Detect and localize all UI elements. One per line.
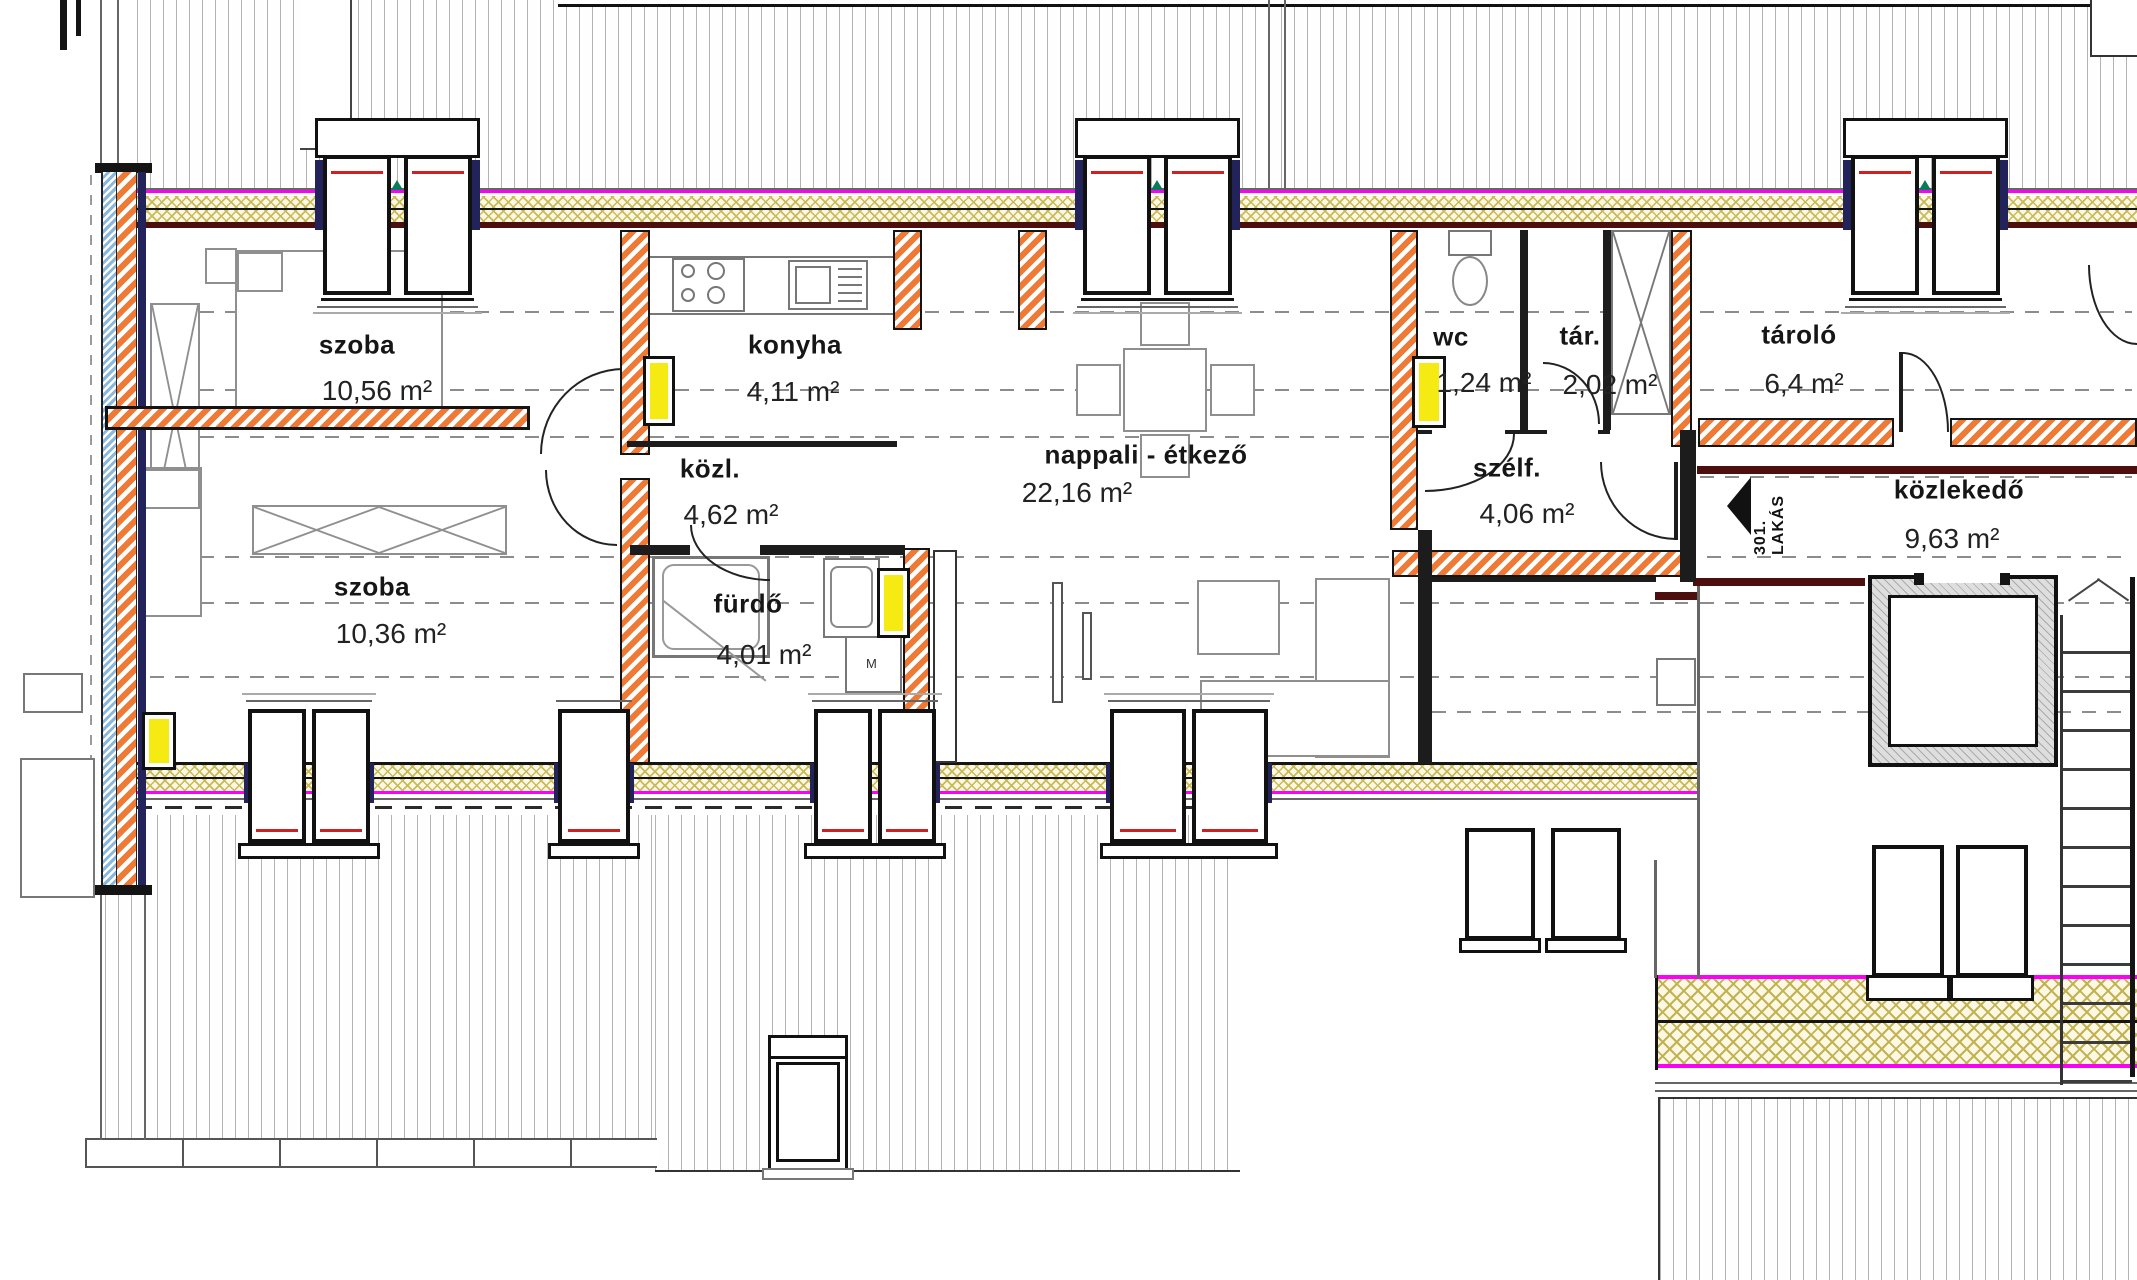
window-sash — [1872, 845, 1944, 977]
window-sash — [312, 709, 370, 843]
room-area-kozl: 4,62 m² — [684, 499, 779, 531]
floor-edge-maroon — [1693, 578, 1865, 586]
wall-szoba1-szoba2 — [105, 406, 530, 430]
radiator — [884, 575, 903, 631]
window-marker-icon — [1151, 180, 1163, 190]
left-wall-waterproof-layer — [101, 172, 117, 887]
washing-machine-label: M — [866, 656, 877, 671]
window-marker-red — [1859, 171, 1911, 174]
room-label-szoba-1: szoba — [319, 330, 395, 361]
roof-top-edge-line — [558, 0, 2137, 7]
window-marker-red — [568, 829, 620, 832]
elevator-car — [1888, 595, 2038, 747]
room-label-wc: wc — [1433, 322, 1469, 353]
door-leaf — [1899, 352, 1903, 432]
window-base — [1950, 975, 2034, 1001]
window — [556, 700, 632, 863]
burner-icon — [681, 264, 695, 278]
pillow — [237, 252, 283, 292]
toilet-bowl-icon — [1452, 256, 1488, 306]
window-base — [804, 843, 946, 859]
window-sash — [1164, 155, 1232, 295]
door-arc — [1600, 462, 1676, 540]
roof-seam-line — [1268, 0, 1270, 188]
armchair — [1197, 580, 1280, 655]
room-label-tarolo: tároló — [1761, 320, 1836, 351]
stairs-break-line — [2068, 578, 2100, 601]
window-sill — [1841, 312, 2010, 314]
door-arc — [540, 368, 624, 454]
wall-konyha-kozl — [627, 441, 897, 447]
roof-edge-line — [117, 0, 119, 165]
window-base — [1866, 975, 1950, 1001]
roof-edge-line — [100, 895, 102, 1140]
window-sill — [1845, 306, 2006, 308]
window-sash — [404, 155, 472, 295]
window-sill — [1077, 306, 1238, 308]
room-label-tar: tár. — [1559, 321, 1600, 352]
wall-stub-nappali — [1018, 230, 1047, 330]
room-area-nappali: 22,16 m² — [1022, 477, 1133, 509]
window-sash — [558, 709, 630, 843]
window-marker-icon — [391, 180, 403, 190]
window-sill — [1081, 298, 1234, 301]
shaft-box — [1656, 658, 1696, 706]
room-area-furdo: 4,01 m² — [717, 639, 812, 671]
door-panel — [1052, 582, 1063, 703]
door-arc — [1903, 352, 1949, 432]
roof-seam-line — [1284, 0, 1286, 188]
room-label-furdo: fürdő — [714, 589, 783, 620]
wall-szelf-bottom — [1392, 550, 1692, 577]
pillow — [142, 469, 200, 509]
window — [812, 693, 938, 863]
wall-konyha-nappali — [893, 230, 922, 330]
burner-icon — [707, 262, 725, 280]
window-marker-red — [331, 171, 383, 174]
stairs-wall — [2130, 577, 2135, 1077]
left-wall-cap-bottom — [95, 885, 152, 895]
window-sill — [313, 312, 482, 314]
band-edge — [1655, 975, 1658, 1070]
sink-basin — [795, 266, 831, 304]
window-sash — [1551, 828, 1621, 940]
stairs-break-line — [2097, 578, 2129, 601]
window — [1108, 693, 1270, 863]
window-marker-red — [1172, 171, 1224, 174]
room-label-nappali: nappali - étkező — [1044, 440, 1247, 471]
wall-tar-threshold — [1598, 430, 1610, 434]
headroom-dashed-line — [150, 556, 1420, 558]
burner-icon — [707, 286, 725, 304]
room-label-konyha: konyha — [748, 330, 842, 361]
window — [1843, 118, 2008, 314]
left-wall-brick-layer — [117, 172, 137, 887]
window-sash — [814, 709, 872, 843]
window-marker-red — [1940, 171, 1992, 174]
wardrobe-x-icon — [252, 505, 507, 555]
window-sill — [242, 693, 376, 695]
wall-kozl-furdo — [630, 545, 690, 555]
roof-area-bottom-left — [105, 815, 655, 1140]
window-sill — [1104, 693, 1274, 695]
window-base — [1459, 938, 1541, 953]
window-sash — [1083, 155, 1151, 295]
door-arc — [545, 470, 617, 546]
window-sill — [1073, 312, 1242, 314]
left-wall-inner-layer — [138, 172, 146, 887]
room-area-tar: 2,02 m² — [1563, 369, 1658, 401]
window-marker-icon — [1919, 180, 1931, 190]
window-sash — [1465, 828, 1535, 940]
roof-area-bottom-middle — [655, 815, 1240, 1172]
room-area-szoba-2: 10,36 m² — [336, 618, 447, 650]
room-area-kozlekedo: 9,63 m² — [1905, 523, 2000, 555]
window-sill — [1108, 700, 1270, 702]
parapet-brick-band — [85, 1138, 657, 1168]
elevator-door-jamb — [1914, 573, 1924, 585]
roof-edge-line — [100, 0, 102, 165]
dining-table — [1123, 348, 1207, 432]
window-marker-red — [320, 829, 362, 832]
window-dormer — [1075, 118, 1240, 158]
headroom-dashed-line — [150, 436, 1390, 438]
floor-edge-maroon — [1655, 592, 1700, 600]
room-label-szelf: szélf. — [1473, 453, 1541, 484]
window-sill — [808, 693, 942, 695]
wall-shaft-tarolo — [1671, 230, 1692, 447]
window-base — [548, 843, 640, 859]
roof-window-sash — [776, 1062, 840, 1162]
window-marker-red — [1202, 829, 1258, 832]
toilet-tank — [1448, 230, 1492, 256]
window-sash — [878, 709, 936, 843]
sink-drainboard — [838, 268, 862, 302]
room-area-wc: 1,24 m² — [1437, 367, 1532, 399]
radiator — [149, 719, 169, 763]
window-sill — [812, 700, 938, 702]
window-sill — [321, 298, 474, 301]
window-dormer — [315, 118, 480, 158]
wall-nappali-east — [1418, 530, 1432, 764]
room-label-kozl: közl. — [680, 454, 740, 485]
chair — [1076, 364, 1121, 416]
door-leaf — [1674, 462, 1678, 540]
window-marker-red — [822, 829, 864, 832]
window-sash — [323, 155, 391, 295]
window-marker-red — [1091, 171, 1143, 174]
roof-dormer — [20, 758, 95, 898]
nightstand — [205, 248, 237, 284]
wall-room-top — [1430, 577, 1656, 582]
roof-window-base — [762, 1168, 854, 1180]
window — [246, 693, 372, 863]
window-marker-red — [1120, 829, 1176, 832]
room-label-szoba-2: szoba — [334, 572, 410, 603]
wall-tarolo-bottom — [1698, 418, 1894, 447]
window-sash — [1956, 845, 2028, 977]
facade-bar — [60, 0, 67, 50]
window-base — [1545, 938, 1627, 953]
window-base — [1100, 843, 1278, 859]
terrace-line — [1655, 1090, 2137, 1092]
window-sill — [246, 700, 372, 702]
roof-edge-line — [144, 895, 146, 1140]
radiator — [650, 363, 668, 419]
window-sash — [1192, 709, 1268, 843]
floor-plan: M — [0, 0, 2137, 1280]
elevator-door-jamb — [2000, 573, 2010, 585]
room-area-konyha: 4,11 m² — [747, 376, 840, 408]
window — [315, 118, 480, 314]
door-panel — [1082, 612, 1092, 680]
wall-wc-threshold — [1505, 430, 1547, 434]
window-sash — [1851, 155, 1919, 295]
window-sill — [556, 700, 632, 702]
window-sill — [317, 306, 478, 308]
stairs — [2060, 615, 2132, 1085]
roof-dormer — [23, 673, 83, 713]
window-dormer — [1843, 118, 2008, 158]
window-sash — [1932, 155, 2000, 295]
room-label-kozlekedo: közlekedő — [1894, 475, 2024, 506]
window-base — [238, 843, 380, 859]
facade-bar — [76, 0, 81, 36]
washbasin-bowl — [830, 566, 873, 628]
elevator-door-gap — [1922, 571, 2006, 583]
wall-kozl-furdo — [760, 545, 905, 555]
wall-tarolo-bottom — [1950, 418, 2137, 447]
window-sash — [1110, 709, 1186, 843]
window-marker-red — [886, 829, 928, 832]
roof-area-bottom-right — [1658, 1097, 2137, 1280]
wall-wc-threshold — [1418, 430, 1432, 434]
wall-wc-tar — [1520, 230, 1528, 430]
room-area-tarolo: 6,4 m² — [1764, 368, 1843, 400]
door-arc — [2088, 265, 2137, 345]
window — [1075, 118, 1240, 314]
roof-notch-topright — [2090, 0, 2137, 57]
chair — [1210, 364, 1255, 416]
roof-window-top — [768, 1035, 848, 1059]
window-marker-red — [412, 171, 464, 174]
room-area-szelf: 4,06 m² — [1480, 498, 1575, 530]
burner-icon — [681, 288, 695, 302]
wall-kozlekedo-west — [1680, 430, 1696, 582]
window-sash — [248, 709, 306, 843]
entrance-arrow-icon — [1727, 477, 1751, 535]
apartment-number-label: 301. LAKÁS — [1752, 465, 1788, 555]
room-area-szoba-1: 10,56 m² — [322, 375, 433, 407]
wall-line — [1654, 860, 1657, 978]
window-marker-red — [256, 829, 298, 832]
window-sill — [1849, 298, 2002, 301]
wall-line — [1697, 586, 1700, 978]
